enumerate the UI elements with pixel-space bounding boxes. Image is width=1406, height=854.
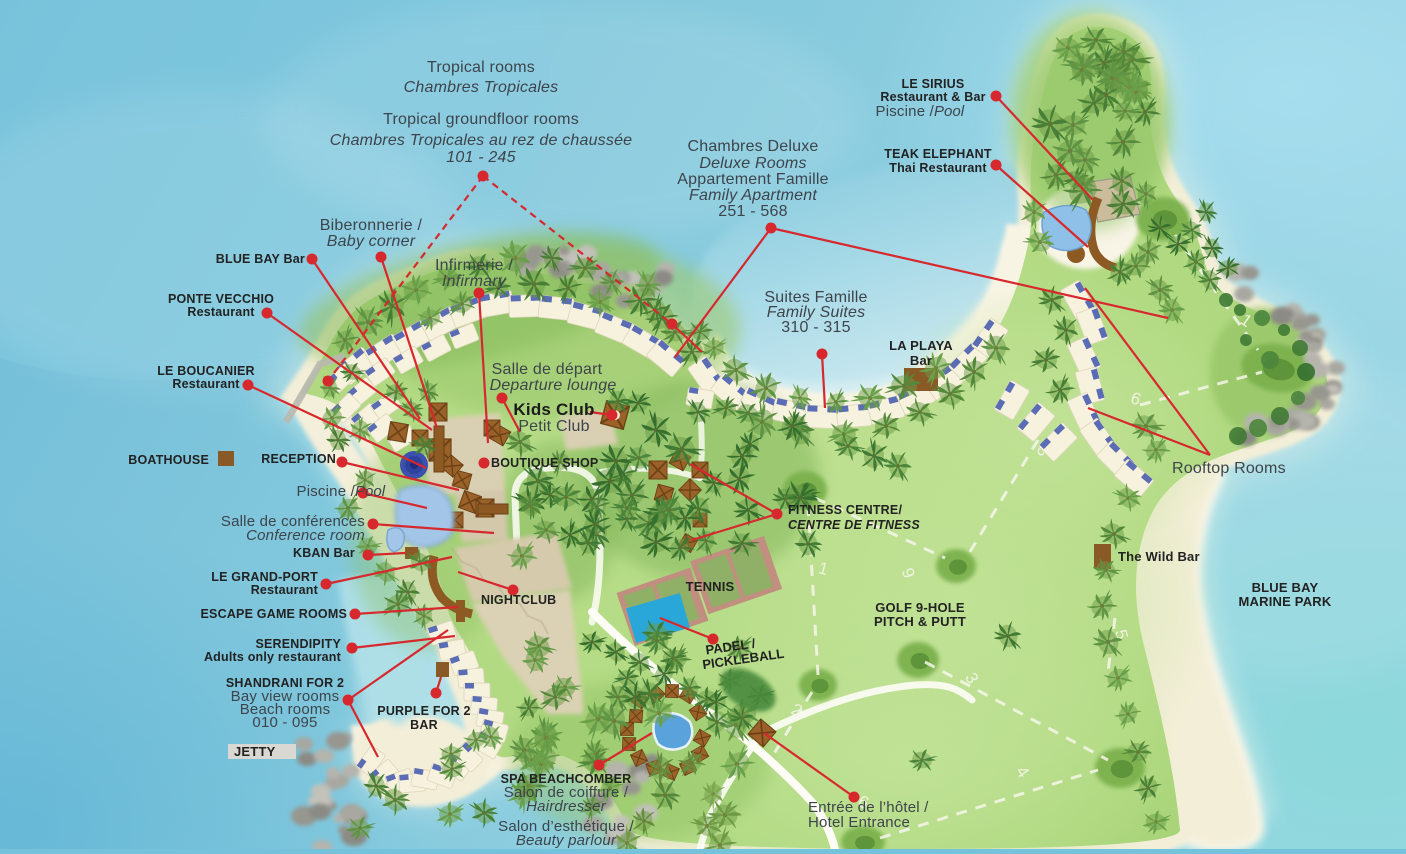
svg-text:NIGHTCLUB: NIGHTCLUB <box>481 593 556 607</box>
svg-text:TENNIS: TENNIS <box>686 579 735 594</box>
svg-text:GOLF 9-HOLE: GOLF 9-HOLE <box>875 600 965 615</box>
svg-text:Hairdresser: Hairdresser <box>526 798 607 815</box>
svg-text:JETTY: JETTY <box>234 744 276 759</box>
svg-text:FITNESS CENTRE/: FITNESS CENTRE/ <box>788 503 902 517</box>
svg-text:The Wild Bar: The Wild Bar <box>1118 549 1200 564</box>
svg-text:251 - 568: 251 - 568 <box>718 203 787 220</box>
svg-text:Adults only restaurant: Adults only restaurant <box>204 650 342 664</box>
svg-text:Pool: Pool <box>934 103 965 120</box>
svg-text:Chambres Deluxe: Chambres Deluxe <box>687 138 818 155</box>
svg-text:Restaurant: Restaurant <box>251 583 319 597</box>
svg-text:Deluxe Rooms: Deluxe Rooms <box>699 155 806 172</box>
svg-text:LA PLAYA: LA PLAYA <box>889 338 953 353</box>
svg-text:Piscine /: Piscine / <box>876 103 935 120</box>
svg-text:Beauty parlour: Beauty parlour <box>516 832 617 849</box>
svg-text:Baby corner: Baby corner <box>327 233 416 250</box>
svg-text:Biberonnerie /: Biberonnerie / <box>320 217 423 234</box>
svg-text:Tropical groundfloor rooms: Tropical groundfloor rooms <box>383 111 579 128</box>
svg-text:BLUE BAY Bar: BLUE BAY Bar <box>216 252 305 266</box>
svg-text:Departure lounge: Departure lounge <box>490 377 617 394</box>
svg-text:LE SIRIUS: LE SIRIUS <box>902 77 965 91</box>
svg-text:PURPLE FOR 2: PURPLE FOR 2 <box>377 704 470 718</box>
svg-text:310 - 315: 310 - 315 <box>781 319 850 336</box>
svg-text:Chambres Tropicales: Chambres Tropicales <box>404 79 559 96</box>
svg-text:Hotel Entrance: Hotel Entrance <box>808 814 910 831</box>
svg-text:CENTRE DE FITNESS: CENTRE DE FITNESS <box>788 518 920 532</box>
svg-text:Restaurant & Bar: Restaurant & Bar <box>880 90 985 104</box>
svg-text:Thai Restaurant: Thai Restaurant <box>889 161 987 175</box>
svg-text:BAR: BAR <box>410 718 438 732</box>
svg-text:TEAK ELEPHANT: TEAK ELEPHANT <box>884 147 992 161</box>
svg-text:SERENDIPITY: SERENDIPITY <box>255 637 341 651</box>
svg-text:BOUTIQUE SHOP: BOUTIQUE SHOP <box>491 456 598 470</box>
svg-text:Piscine /: Piscine / <box>297 483 356 500</box>
svg-text:010 - 095: 010 - 095 <box>252 714 317 731</box>
svg-text:PONTE VECCHIO: PONTE VECCHIO <box>168 292 274 306</box>
svg-text:Chambres Tropicales au rez de: Chambres Tropicales au rez de chaussée <box>330 132 633 149</box>
svg-text:PITCH & PUTT: PITCH & PUTT <box>874 614 966 629</box>
svg-text:Family Apartment: Family Apartment <box>689 187 817 204</box>
svg-text:Restaurant: Restaurant <box>172 377 240 391</box>
svg-text:Restaurant: Restaurant <box>187 305 255 319</box>
svg-text:Infirmary: Infirmary <box>442 273 507 290</box>
svg-text:Petit Club: Petit Club <box>518 418 589 435</box>
svg-text:ESCAPE GAME ROOMS: ESCAPE GAME ROOMS <box>201 607 347 621</box>
svg-text:BLUE BAY: BLUE BAY <box>1252 580 1319 595</box>
svg-text:Salle de départ: Salle de départ <box>492 361 603 378</box>
svg-text:Appartement Famille: Appartement Famille <box>677 171 828 188</box>
svg-text:Kids Club: Kids Club <box>513 400 594 419</box>
svg-text:Pool: Pool <box>355 483 386 500</box>
svg-text:Rooftop Rooms: Rooftop Rooms <box>1172 460 1286 477</box>
svg-text:Tropical rooms: Tropical rooms <box>427 59 535 76</box>
svg-text:Infirmerie /: Infirmerie / <box>435 257 513 274</box>
svg-text:MARINE PARK: MARINE PARK <box>1239 594 1332 609</box>
svg-text:Conference room: Conference room <box>246 527 365 544</box>
svg-text:LE BOUCANIER: LE BOUCANIER <box>157 364 255 378</box>
svg-text:LE GRAND-PORT: LE GRAND-PORT <box>211 570 318 584</box>
svg-text:RECEPTION: RECEPTION <box>261 452 336 466</box>
svg-text:101 - 245: 101 - 245 <box>446 149 515 166</box>
svg-text:KBAN Bar: KBAN Bar <box>293 546 355 560</box>
svg-text:BOATHOUSE: BOATHOUSE <box>128 453 209 467</box>
svg-text:Bar: Bar <box>910 353 932 368</box>
